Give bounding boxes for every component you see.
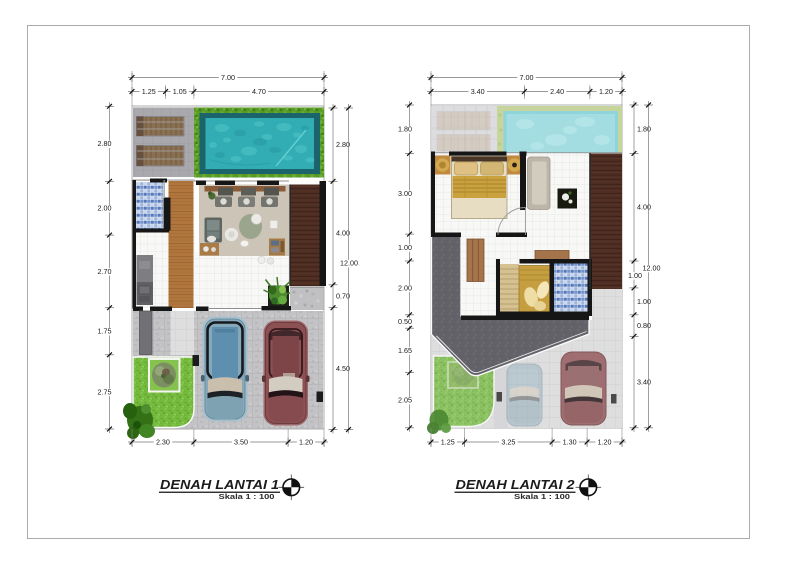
svg-text:1.75: 1.75 <box>98 327 112 336</box>
svg-text:DENAH LANTAI 1: DENAH LANTAI 1 <box>160 477 279 492</box>
svg-text:2.05: 2.05 <box>398 396 412 405</box>
svg-text:1.80: 1.80 <box>637 125 651 134</box>
svg-text:7.00: 7.00 <box>221 73 235 82</box>
svg-text:12.00: 12.00 <box>340 259 358 268</box>
svg-text:1.25: 1.25 <box>441 437 455 446</box>
svg-text:1.05: 1.05 <box>173 87 187 96</box>
svg-text:DENAH LANTAI 2: DENAH LANTAI 2 <box>456 477 576 492</box>
svg-text:4.50: 4.50 <box>336 364 350 373</box>
svg-text:4.00: 4.00 <box>637 203 651 212</box>
svg-text:2.75: 2.75 <box>98 387 112 396</box>
svg-text:3.40: 3.40 <box>471 87 485 96</box>
svg-text:3.00: 3.00 <box>398 189 412 198</box>
svg-text:1.20: 1.20 <box>599 87 613 96</box>
svg-text:12.00: 12.00 <box>643 264 661 273</box>
svg-text:3.25: 3.25 <box>501 437 515 446</box>
svg-text:3.50: 3.50 <box>234 437 248 446</box>
svg-text:4.70: 4.70 <box>252 87 266 96</box>
svg-text:0.50: 0.50 <box>398 317 412 326</box>
svg-text:Skala 1 : 100: Skala 1 : 100 <box>219 494 275 501</box>
svg-text:1.80: 1.80 <box>398 125 412 134</box>
svg-text:0.70: 0.70 <box>336 292 350 301</box>
svg-text:7.00: 7.00 <box>520 73 534 82</box>
svg-text:0.80: 0.80 <box>637 321 651 330</box>
svg-text:1.30: 1.30 <box>563 437 577 446</box>
svg-text:1.00: 1.00 <box>637 297 651 306</box>
svg-text:2.80: 2.80 <box>336 140 350 149</box>
svg-text:2.80: 2.80 <box>98 139 112 148</box>
svg-text:Skala 1 : 100: Skala 1 : 100 <box>514 494 570 501</box>
svg-text:1.65: 1.65 <box>398 346 412 355</box>
svg-text:1.20: 1.20 <box>299 437 313 446</box>
svg-text:1.20: 1.20 <box>598 437 612 446</box>
svg-text:2.70: 2.70 <box>98 267 112 276</box>
svg-text:4.00: 4.00 <box>336 228 350 237</box>
svg-text:1.00: 1.00 <box>398 243 412 252</box>
svg-text:3.40: 3.40 <box>637 377 651 386</box>
svg-text:1.25: 1.25 <box>142 87 156 96</box>
svg-text:2.40: 2.40 <box>550 87 564 96</box>
svg-text:2.00: 2.00 <box>98 204 112 213</box>
svg-text:2.30: 2.30 <box>156 437 170 446</box>
svg-text:2.00: 2.00 <box>398 283 412 292</box>
svg-text:1.00: 1.00 <box>628 271 642 280</box>
